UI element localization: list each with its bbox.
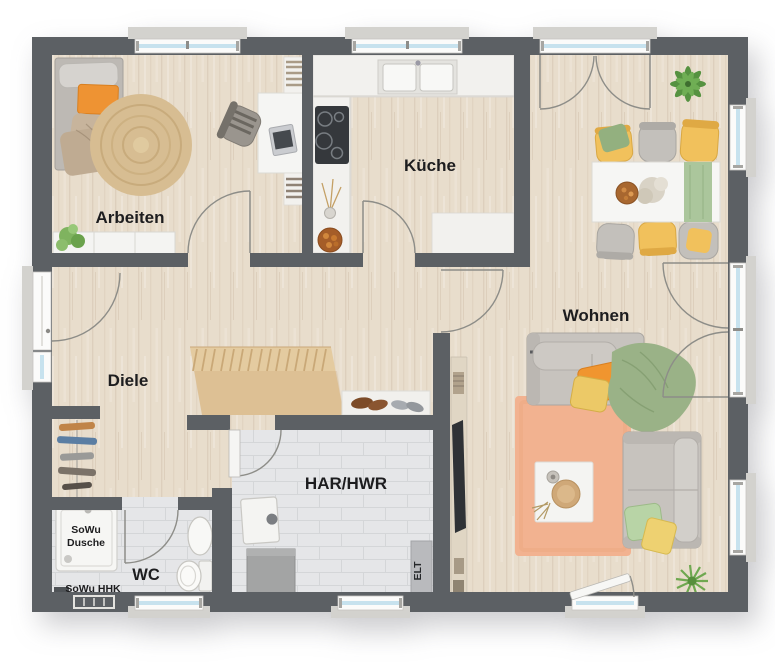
wall-kueche-diele-east xyxy=(415,253,530,267)
wall-arbeiten-diele-east xyxy=(250,253,302,267)
dining-chair xyxy=(596,223,635,260)
fruit-bowl-icon xyxy=(318,228,342,252)
tv-sideboard xyxy=(451,357,467,610)
label-elt: ELT xyxy=(412,561,424,581)
room-label-har-hwr: HAR/HWR xyxy=(305,474,387,493)
room-label-kueche: Küche xyxy=(404,156,456,175)
wall-wc-top-west xyxy=(52,497,122,510)
toilet xyxy=(177,561,212,591)
room-label-diele: Diele xyxy=(108,371,149,390)
dining-chair xyxy=(638,221,677,256)
wall-stairs-har-west xyxy=(187,415,230,430)
cooktop xyxy=(315,106,349,164)
wall-arbeiten-diele-west xyxy=(52,253,188,267)
shoe-shelf xyxy=(342,391,430,415)
wall-stairs-har-east xyxy=(275,415,433,430)
window-bottom-har xyxy=(338,596,403,610)
wall-niche-stub xyxy=(52,406,100,419)
room-label-arbeiten: Arbeiten xyxy=(96,208,165,227)
window-top-kueche xyxy=(352,39,462,53)
wall-kueche-diele-west xyxy=(313,253,363,267)
window-bottom-wc xyxy=(135,596,203,610)
staircase xyxy=(190,347,344,415)
desk xyxy=(258,93,304,173)
round-rug xyxy=(90,94,192,196)
wall-har-wohnen xyxy=(433,333,450,592)
room-label-wohnen: Wohnen xyxy=(563,306,630,325)
palm-plant xyxy=(670,66,706,102)
window-right-lounge xyxy=(730,480,746,555)
dining-chairs-bottom xyxy=(596,221,718,260)
coffee-table xyxy=(532,462,593,522)
kitchen-counter-right xyxy=(432,213,514,258)
label-sowu-dusche-line2: Dusche xyxy=(67,537,105,549)
wall-wc-har xyxy=(212,488,232,592)
dining-chair xyxy=(680,119,720,163)
label-sowu-hhk: SoWu HHK xyxy=(65,583,121,595)
dining-table xyxy=(592,162,720,222)
dining-chair xyxy=(639,122,676,162)
dining-chair xyxy=(679,222,718,259)
storage-box xyxy=(247,549,295,595)
washing-machine xyxy=(241,497,280,544)
floor-plan-svg: Arbeiten Küche Wohnen Diele HAR/HWR WC S… xyxy=(0,0,775,665)
pillow-yellow xyxy=(569,375,610,413)
wall-kueche-wohnen xyxy=(514,55,530,267)
wall-arbeiten-kueche xyxy=(302,55,313,267)
room-label-wc: WC xyxy=(132,566,160,584)
kitchen-sink xyxy=(378,60,457,94)
label-sowu-dusche-line1: SoWu xyxy=(71,524,101,536)
wall-wc-top-east xyxy=(178,497,212,510)
window-right-dining xyxy=(730,105,746,170)
window-top-arbeiten xyxy=(135,39,240,53)
floor-plan-image: Arbeiten Küche Wohnen Diele HAR/HWR WC S… xyxy=(0,0,775,665)
washbasin xyxy=(188,517,212,555)
